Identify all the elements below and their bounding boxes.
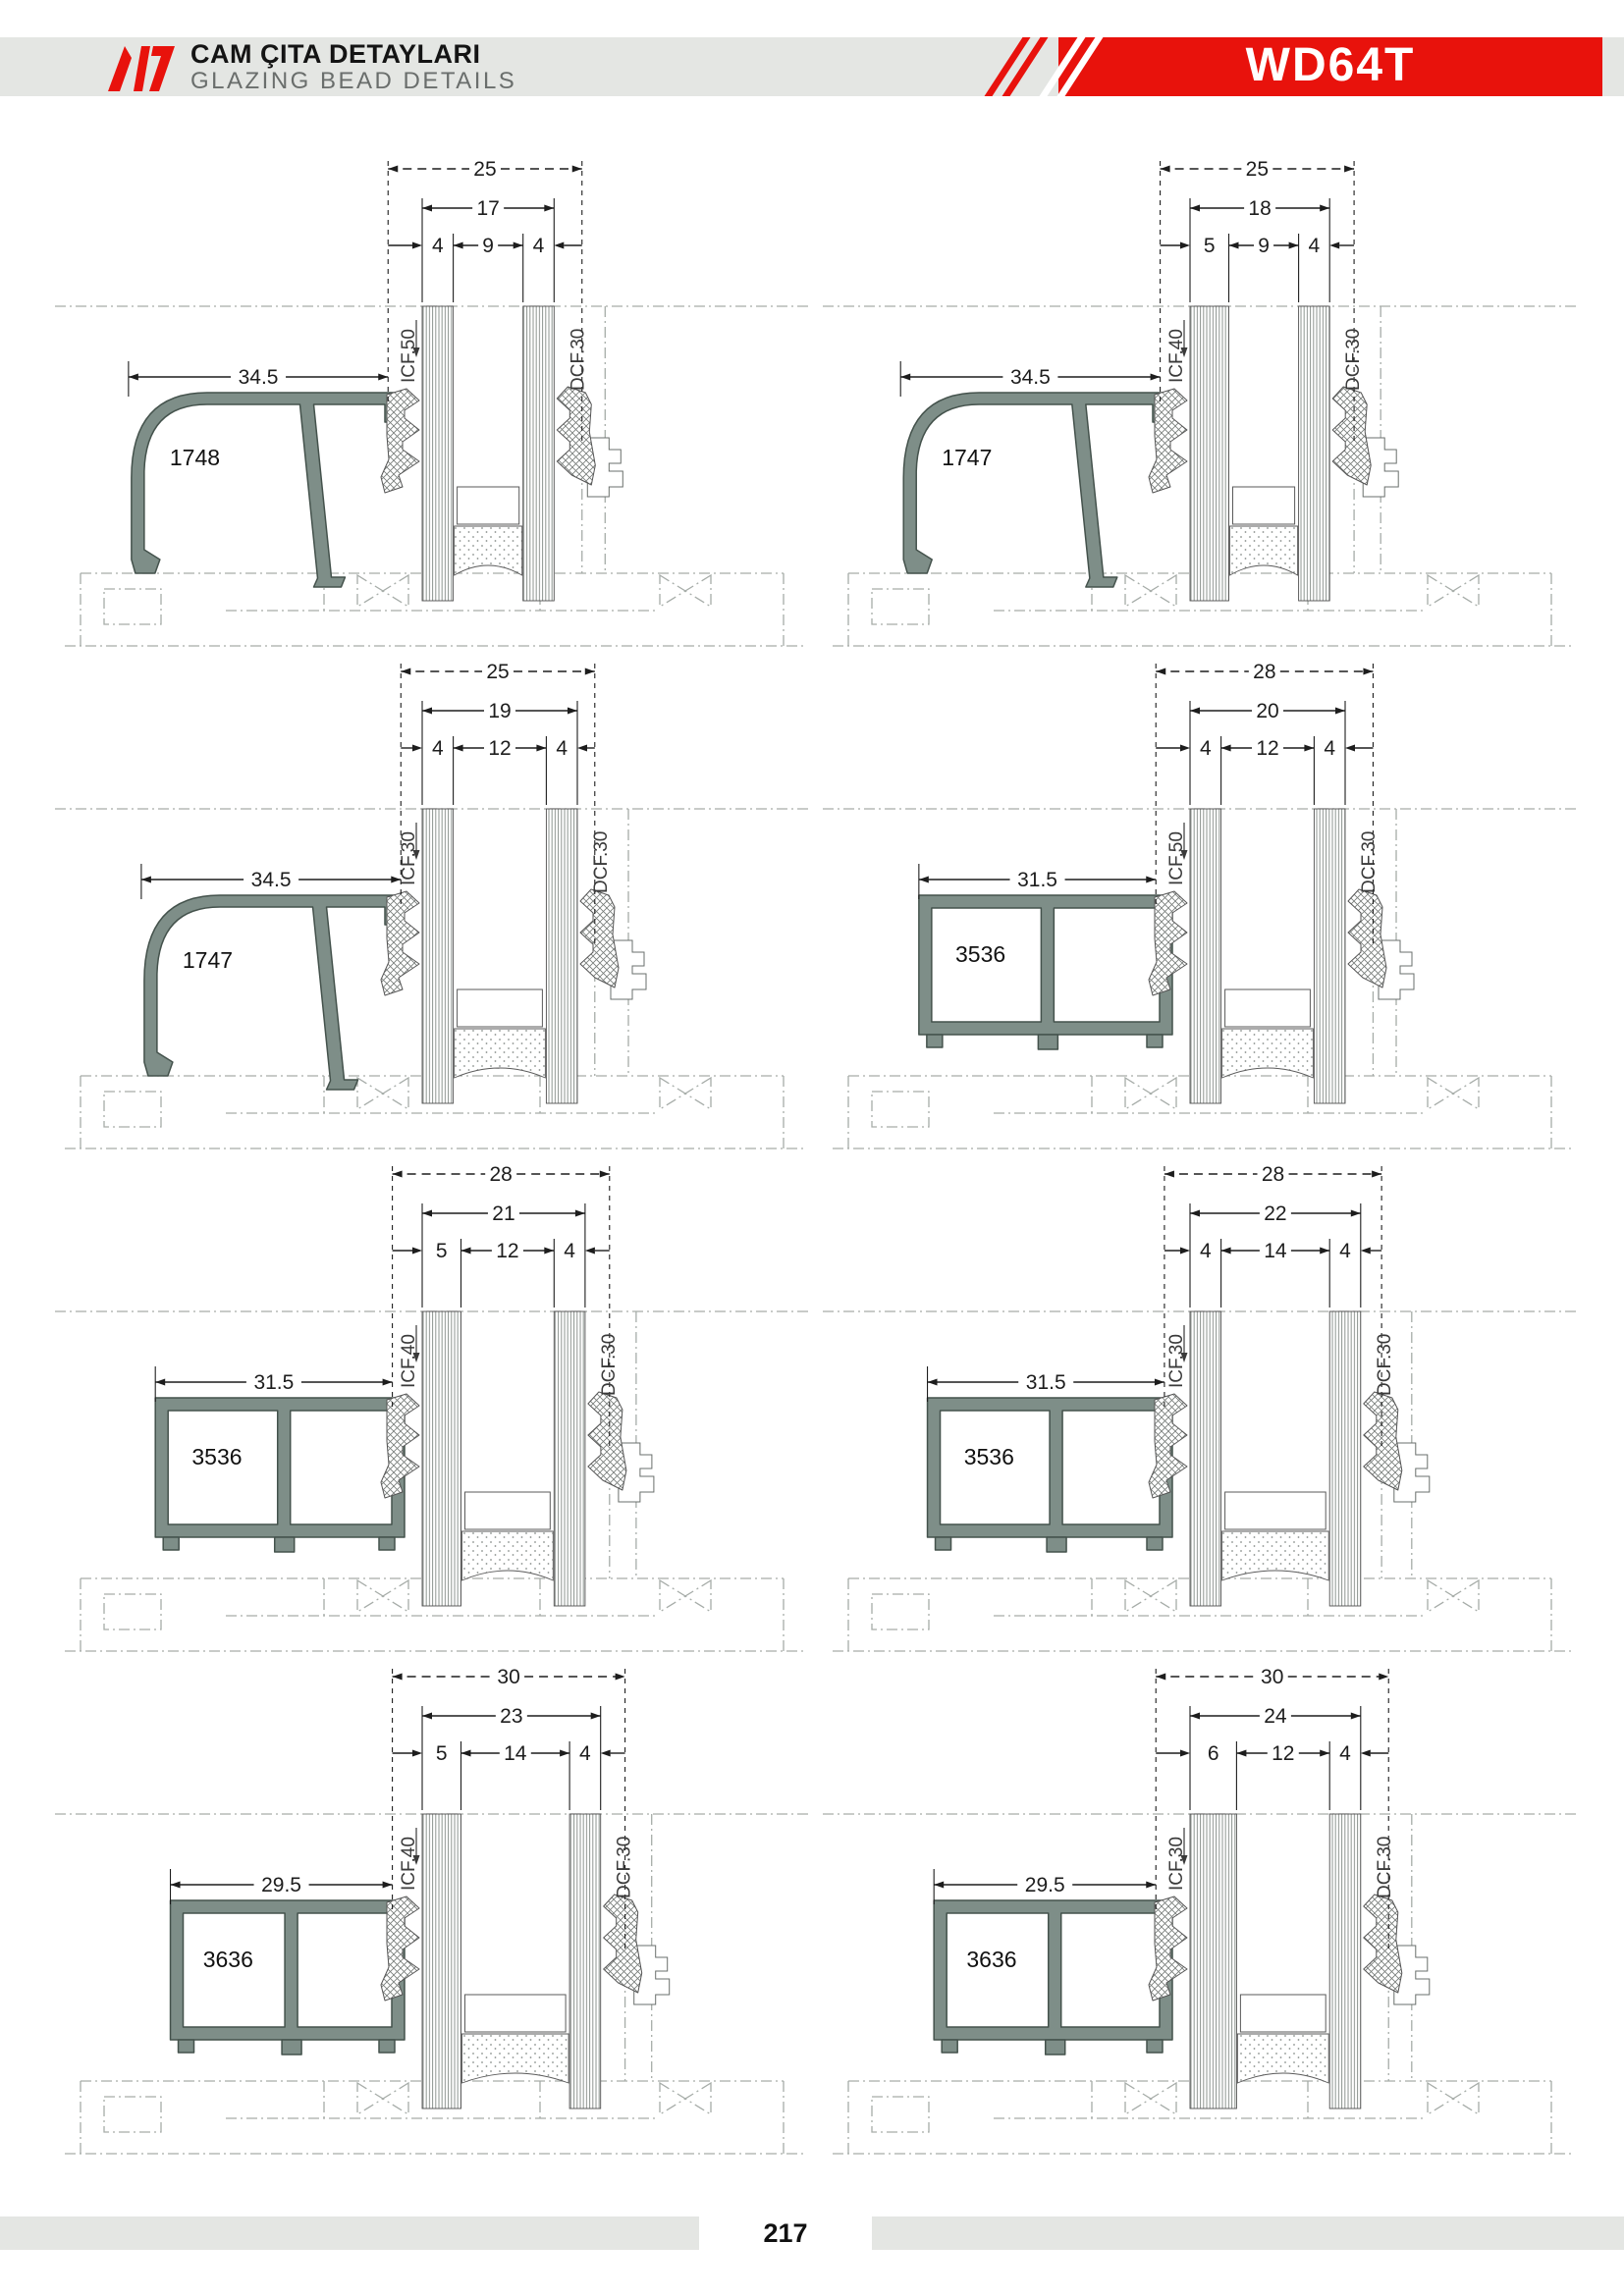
svg-text:28: 28 [1253, 661, 1275, 683]
outer-gasket-label: DCF.30 [1343, 329, 1364, 391]
inner-gasket [381, 891, 419, 995]
svg-text:14: 14 [1264, 1240, 1287, 1262]
diagram-cell-1747-2: 17472519412434.5ICF.30DCF.30 [29, 613, 835, 1162]
outer-gasket-label: DCF.30 [568, 329, 588, 391]
svg-text:4: 4 [564, 1240, 575, 1262]
diagram-cell-3636-7: 36363024612429.5ICF.30DCF.30 [797, 1618, 1602, 2167]
spacer-bar [465, 1995, 567, 2032]
svg-text:29.5: 29.5 [1025, 1874, 1065, 1896]
glazing-bead-profile: 1748 [132, 393, 395, 587]
svg-text:1747: 1747 [942, 445, 992, 470]
svg-text:25: 25 [486, 661, 509, 683]
svg-text:4: 4 [1200, 1240, 1212, 1262]
svg-text:34.5: 34.5 [1010, 366, 1051, 389]
spacer-bar [1233, 487, 1295, 524]
glazing-bead-diagram: 35362822414431.5ICF.30DCF.30 [797, 1115, 1602, 1665]
svg-text:12: 12 [1256, 737, 1278, 760]
outer-gasket-label: DCF.30 [1359, 831, 1380, 893]
outer-gasket [604, 1895, 642, 1993]
svg-text:24: 24 [1264, 1705, 1287, 1728]
diagram-cell-3636-6: 36363023514429.5ICF.40DCF.30 [29, 1618, 835, 2167]
sealant [1222, 1531, 1329, 1580]
glass-unit [1190, 1311, 1361, 1606]
sealant [1237, 2034, 1328, 2083]
svg-text:4: 4 [533, 235, 545, 257]
outer-gasket-label: DCF.30 [591, 831, 612, 893]
sealant [1222, 1029, 1314, 1078]
glass-unit [422, 306, 554, 601]
svg-text:4: 4 [432, 737, 444, 760]
sealant [1230, 526, 1298, 575]
glass-unit [1190, 1814, 1361, 2109]
svg-text:30: 30 [1261, 1666, 1283, 1688]
svg-text:9: 9 [482, 235, 494, 257]
glazing-bead-profile: 3536 [928, 1398, 1172, 1552]
sealant [455, 1029, 546, 1078]
svg-text:3536: 3536 [191, 1444, 242, 1469]
svg-text:20: 20 [1256, 700, 1278, 722]
glazing-bead-diagram: 36363024612429.5ICF.30DCF.30 [797, 1618, 1602, 2167]
svg-text:31.5: 31.5 [253, 1371, 294, 1394]
svg-text:31.5: 31.5 [1026, 1371, 1066, 1394]
svg-text:23: 23 [500, 1705, 522, 1728]
svg-text:12: 12 [496, 1240, 518, 1262]
spacer-bar [458, 487, 519, 524]
glazing-bead-diagram: 36363023514429.5ICF.40DCF.30 [29, 1618, 835, 2167]
glazing-bead-diagram: 1748251749434.5ICF.50DCF.30 [29, 110, 835, 660]
outer-gasket [1364, 1895, 1402, 1993]
svg-text:21: 21 [492, 1202, 514, 1225]
glass-unit [1190, 809, 1345, 1103]
diagram-cell-3536-4: 35362821512431.5ICF.40DCF.30 [29, 1115, 835, 1665]
glass-unit [422, 1311, 585, 1606]
outer-gasket-label: DCF.30 [599, 1334, 620, 1396]
svg-text:4: 4 [1200, 737, 1212, 760]
page-number: 217 [699, 2218, 872, 2249]
svg-text:1748: 1748 [170, 445, 220, 470]
svg-text:4: 4 [432, 235, 444, 257]
glazing-bead-profile: 1747 [144, 895, 395, 1090]
svg-text:4: 4 [1309, 235, 1321, 257]
glazing-bead-profile: 1747 [903, 393, 1163, 587]
spacer-bar [465, 1492, 551, 1529]
svg-text:1747: 1747 [183, 947, 233, 973]
svg-text:12: 12 [488, 737, 511, 760]
svg-text:25: 25 [473, 158, 496, 181]
svg-text:3536: 3536 [955, 941, 1005, 967]
svg-text:6: 6 [1208, 1742, 1219, 1765]
svg-text:28: 28 [490, 1163, 513, 1186]
svg-text:34.5: 34.5 [251, 869, 292, 891]
svg-text:4: 4 [1339, 1742, 1351, 1765]
spacer-bar [458, 989, 543, 1027]
glazing-bead-diagram: 35362820412431.5ICF.50DCF.30 [797, 613, 1602, 1162]
glazing-bead-diagram: 17472519412434.5ICF.30DCF.30 [29, 613, 835, 1162]
svg-text:34.5: 34.5 [239, 366, 279, 389]
svg-text:4: 4 [1324, 737, 1335, 760]
inner-gasket [1149, 389, 1187, 493]
svg-text:4: 4 [579, 1742, 591, 1765]
outer-gasket [1364, 1392, 1402, 1490]
outer-gasket-label: DCF.30 [1375, 1334, 1395, 1396]
svg-text:5: 5 [436, 1240, 448, 1262]
svg-text:4: 4 [1339, 1240, 1351, 1262]
svg-text:5: 5 [1204, 235, 1216, 257]
spacer-bar [1240, 1995, 1326, 2032]
sealant [455, 526, 522, 575]
svg-text:3636: 3636 [966, 1947, 1016, 1972]
glass-unit [422, 1814, 601, 2109]
svg-text:3536: 3536 [964, 1444, 1014, 1469]
outer-gasket [580, 889, 619, 988]
glazing-bead-profile: 3536 [155, 1398, 405, 1552]
svg-text:30: 30 [497, 1666, 519, 1688]
outer-gasket [557, 387, 595, 485]
svg-text:9: 9 [1258, 235, 1270, 257]
svg-text:22: 22 [1264, 1202, 1286, 1225]
svg-text:17: 17 [476, 197, 499, 220]
svg-text:14: 14 [504, 1742, 527, 1765]
svg-text:3636: 3636 [203, 1947, 253, 1972]
svg-text:29.5: 29.5 [261, 1874, 301, 1896]
outer-gasket-label: DCF.30 [615, 1837, 635, 1898]
diagram-cell-3536-5: 35362822414431.5ICF.30DCF.30 [797, 1115, 1602, 1665]
svg-text:31.5: 31.5 [1017, 869, 1057, 891]
glazing-bead-profile: 3536 [919, 895, 1172, 1049]
svg-text:25: 25 [1246, 158, 1269, 181]
glazing-bead-diagram: 1747251859434.5ICF.40DCF.30 [797, 110, 1602, 660]
svg-text:4: 4 [556, 737, 568, 760]
glass-unit [422, 809, 577, 1103]
outer-gasket [1348, 889, 1386, 988]
spacer-bar [1225, 989, 1311, 1027]
sealant [462, 1531, 554, 1580]
outer-gasket [1332, 387, 1371, 485]
outer-gasket [588, 1392, 626, 1490]
diagram-cell-3536-3: 35362820412431.5ICF.50DCF.30 [797, 613, 1602, 1162]
svg-text:28: 28 [1262, 1163, 1284, 1186]
diagram-cell-1748-0: 1748251749434.5ICF.50DCF.30 [29, 110, 835, 660]
svg-text:18: 18 [1248, 197, 1271, 220]
svg-text:12: 12 [1272, 1742, 1294, 1765]
outer-gasket-label: DCF.30 [1375, 1837, 1395, 1898]
svg-text:19: 19 [488, 700, 511, 722]
diagram-sheet: 1748251749434.5ICF.50DCF.30 174725185943… [0, 0, 1624, 2296]
sealant [462, 2034, 569, 2083]
glazing-bead-profile: 3636 [934, 1900, 1172, 2055]
glass-unit [1190, 306, 1329, 601]
spacer-bar [1225, 1492, 1326, 1529]
glazing-bead-profile: 3636 [171, 1900, 405, 2055]
glazing-bead-diagram: 35362821512431.5ICF.40DCF.30 [29, 1115, 835, 1665]
svg-text:5: 5 [436, 1742, 448, 1765]
diagram-cell-1747-1: 1747251859434.5ICF.40DCF.30 [797, 110, 1602, 660]
inner-gasket [381, 389, 419, 493]
